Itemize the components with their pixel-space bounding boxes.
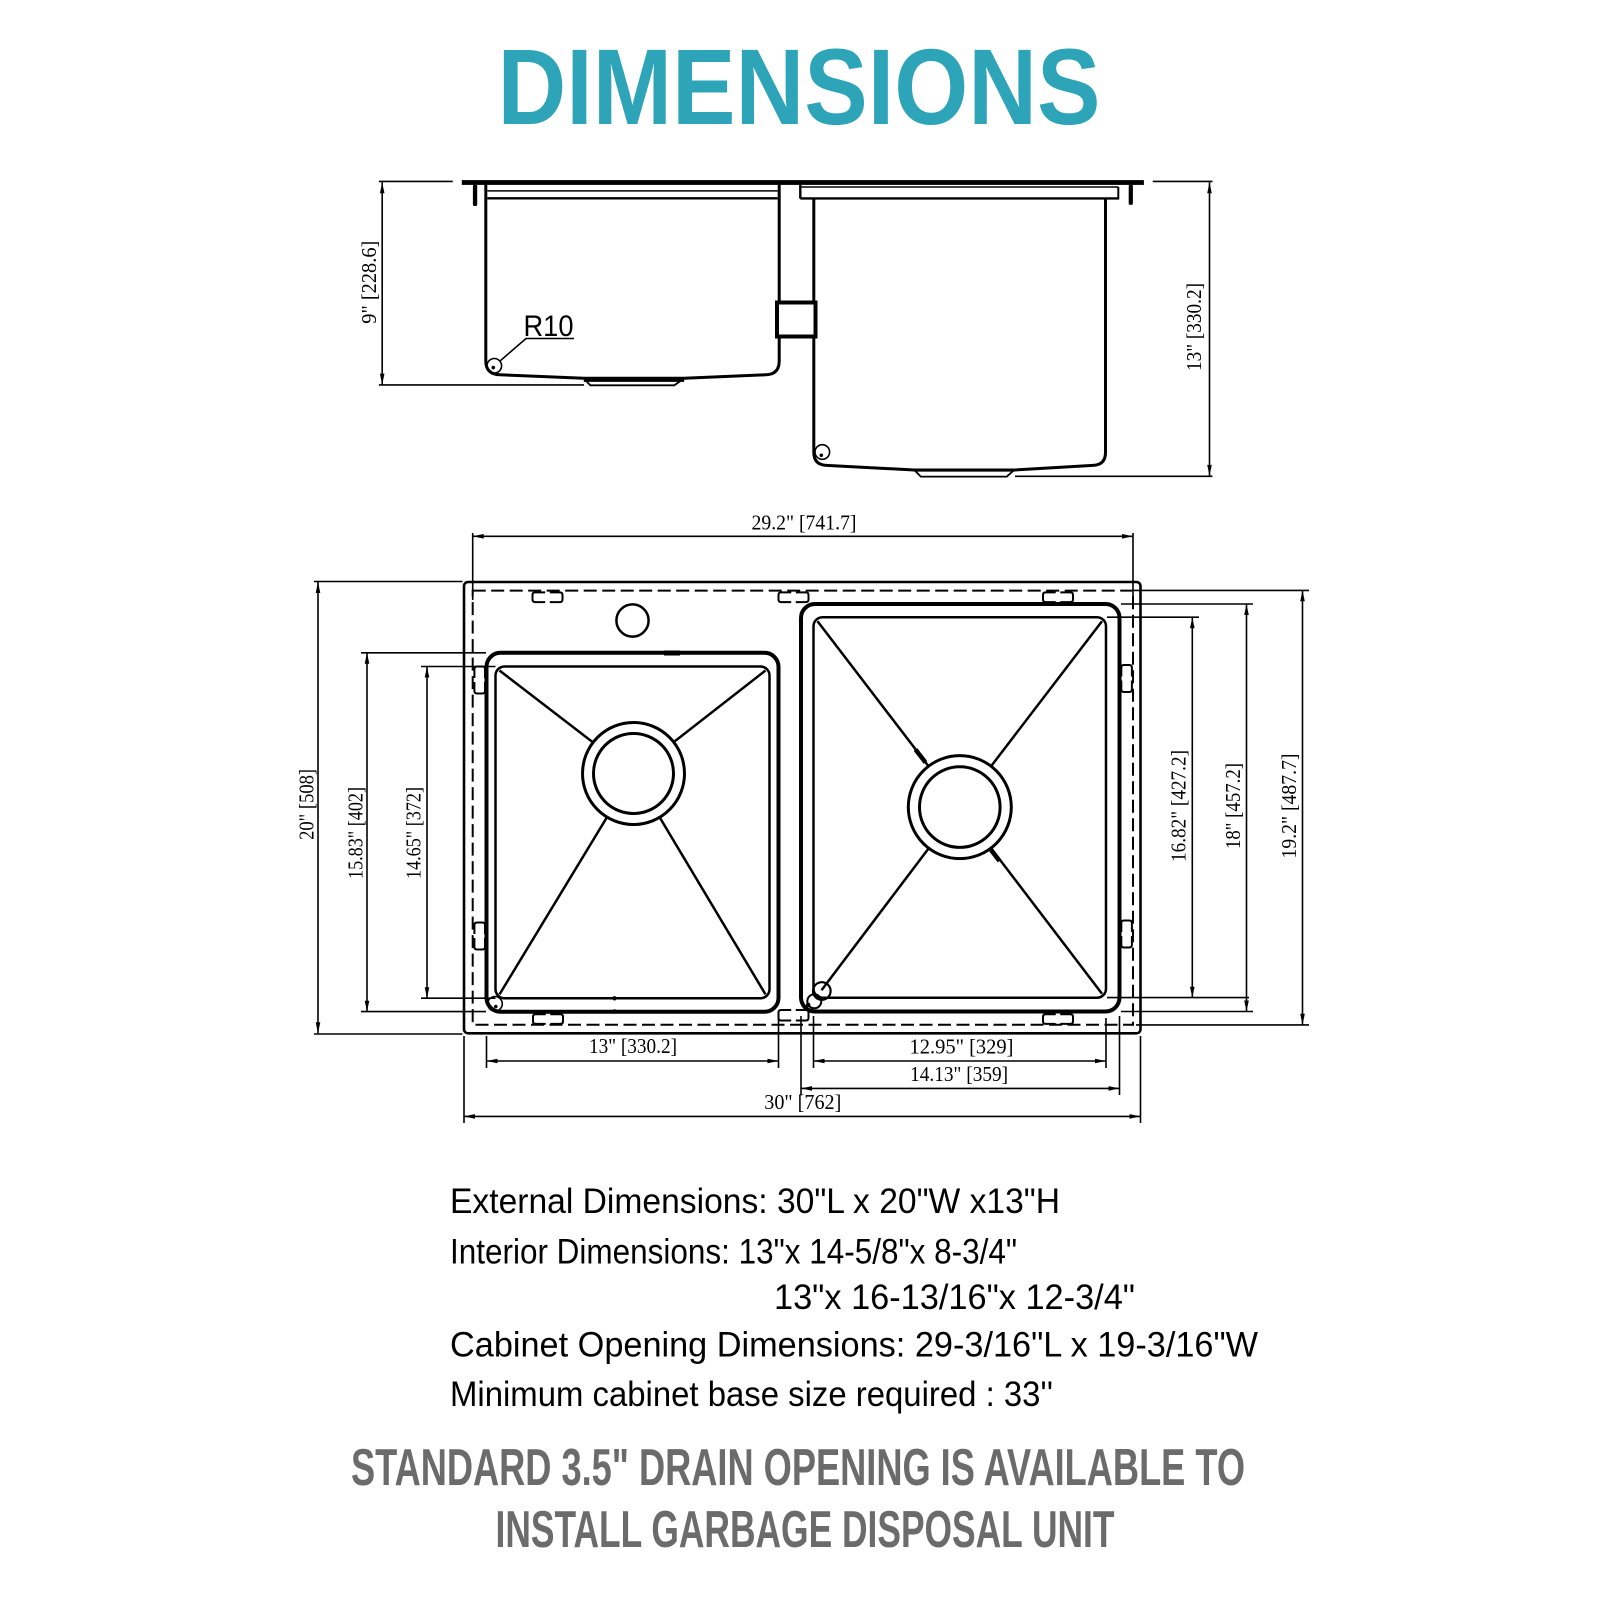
svg-text:16.82" [427.2]: 16.82" [427.2] [1167, 750, 1191, 862]
svg-text:29.2" [741.7]: 29.2" [741.7] [752, 511, 857, 535]
svg-text:R10: R10 [524, 310, 574, 343]
svg-text:14.65" [372]: 14.65" [372] [402, 787, 426, 879]
svg-text:DIMENSIONS: DIMENSIONS [498, 26, 1101, 147]
svg-text:STANDARD 3.5" DRAIN OPENING IS: STANDARD 3.5" DRAIN OPENING IS AVAILABLE… [351, 1439, 1245, 1497]
svg-text:19.2" [487.7]: 19.2" [487.7] [1277, 754, 1301, 859]
svg-text:18" [457.2]: 18" [457.2] [1221, 763, 1245, 849]
svg-text:Interior Dimensions: 13"x 14-5: Interior Dimensions: 13"x 14-5/8"x 8-3/4… [450, 1233, 1017, 1272]
svg-text:20" [508]: 20" [508] [295, 769, 319, 840]
svg-text:15.83" [402]: 15.83" [402] [344, 787, 368, 879]
svg-text:13" [330.2]: 13" [330.2] [589, 1034, 677, 1058]
svg-text:Cabinet Opening Dimensions: 29: Cabinet Opening Dimensions: 29-3/16"L x … [450, 1326, 1258, 1365]
svg-text:13" [330.2]: 13" [330.2] [1182, 283, 1206, 371]
svg-text:14.13" [359]: 14.13" [359] [910, 1062, 1008, 1086]
svg-text:INSTALL GARBAGE DISPOSAL UNIT: INSTALL GARBAGE DISPOSAL UNIT [496, 1501, 1115, 1559]
svg-text:Minimum cabinet base size requ: Minimum cabinet base size required : 33'… [450, 1375, 1053, 1414]
svg-text:External Dimensions: 30"L x 20: External Dimensions: 30"L x 20"W x13"H [450, 1182, 1060, 1221]
svg-text:13"x 16-13/16"x 12-3/4": 13"x 16-13/16"x 12-3/4" [774, 1278, 1135, 1317]
svg-text:9" [228.6]: 9" [228.6] [357, 241, 381, 324]
svg-text:30" [762]: 30" [762] [764, 1090, 841, 1114]
svg-text:12.95" [329]: 12.95" [329] [910, 1035, 1014, 1059]
